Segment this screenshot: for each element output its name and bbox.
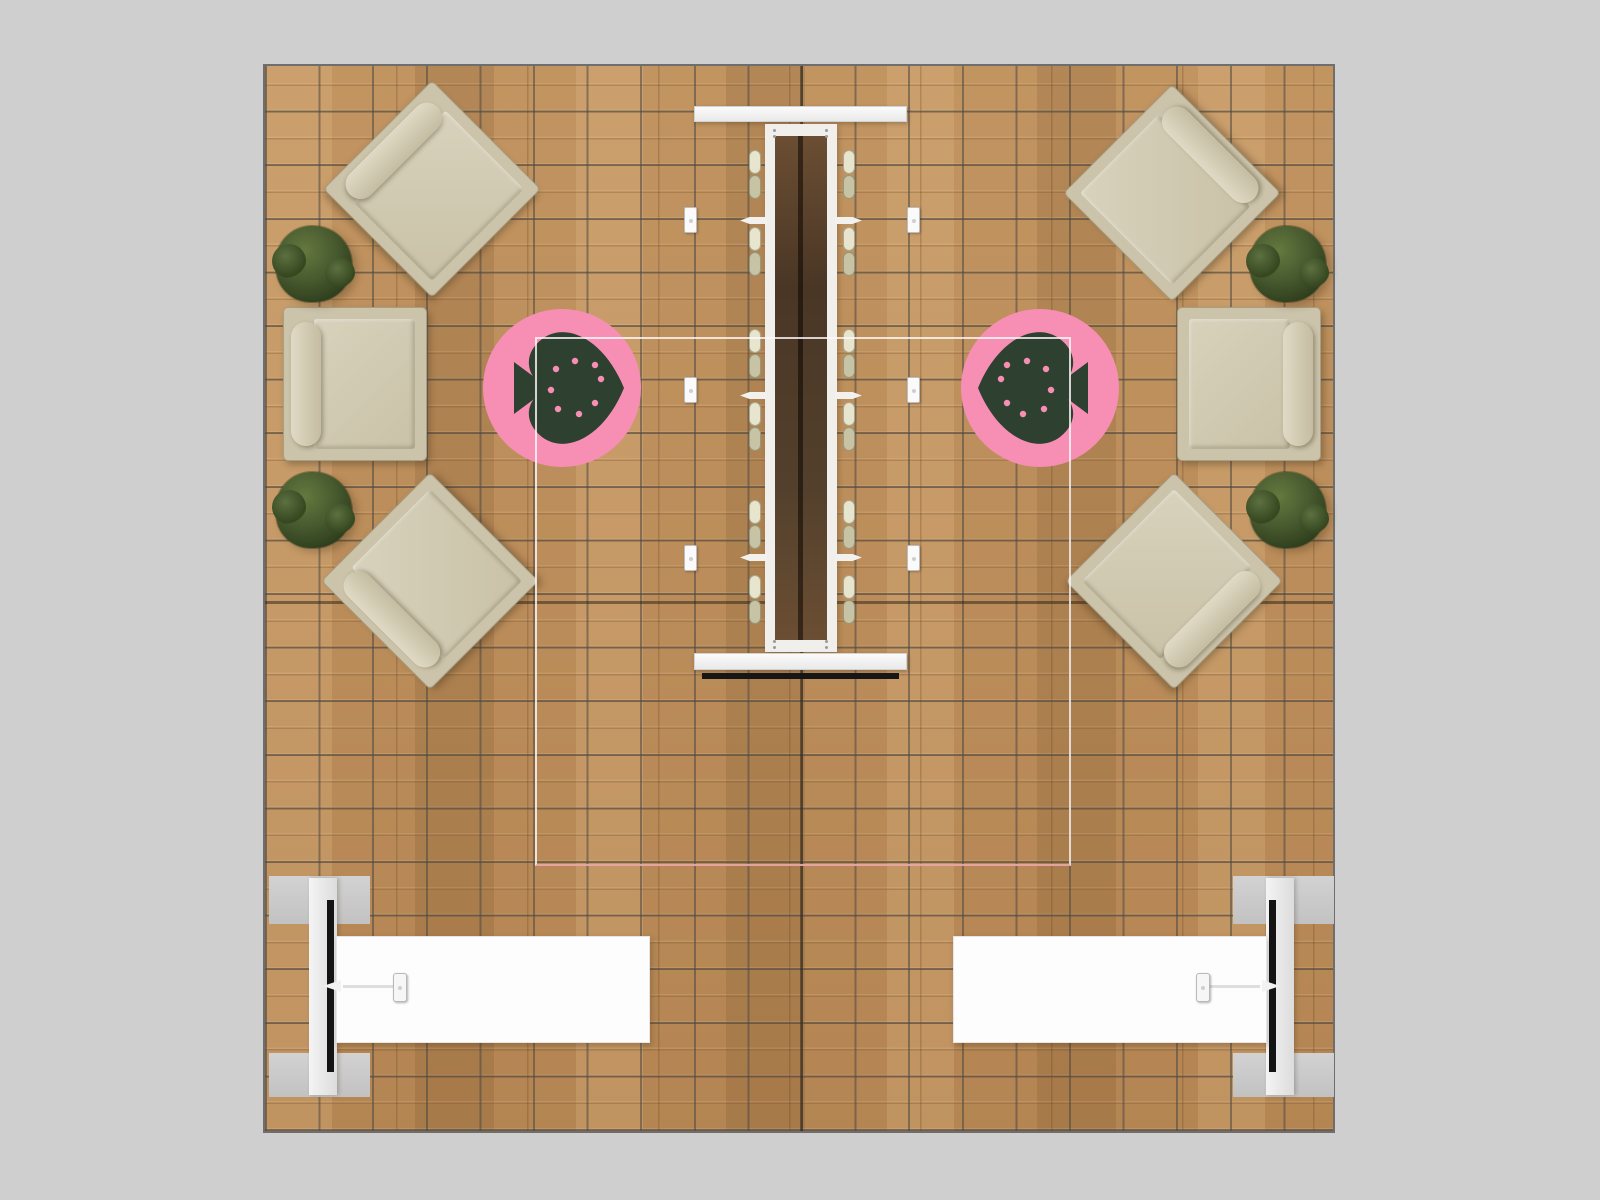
strawberry-heart-icon — [483, 309, 641, 467]
tablet-stand-right — [1196, 973, 1210, 1002]
planter-top-left — [276, 226, 352, 302]
stool-pair — [843, 500, 855, 550]
demo-table-bottom-cap — [694, 653, 907, 670]
shelf-bracket — [835, 392, 862, 399]
planter-bottom-right — [1250, 472, 1326, 548]
chair-seat — [1082, 489, 1252, 659]
lounge-chair-left-side — [283, 307, 427, 461]
literature-stand — [907, 377, 920, 403]
demo-table-top-cap — [694, 106, 907, 122]
tablet-arm-left — [343, 985, 393, 988]
chair-backrest — [291, 322, 321, 446]
arm-arrow-left — [323, 980, 341, 992]
stool-pair — [843, 329, 855, 379]
demo-table-frame — [765, 124, 837, 652]
frame-screws-top — [773, 129, 776, 132]
chair-seat — [1189, 319, 1290, 449]
tablet-stand-left — [393, 973, 407, 1002]
planter-top-right — [1250, 226, 1326, 302]
chair-seat — [314, 319, 415, 449]
demo-table-base-strip — [702, 673, 899, 679]
stool-pair — [843, 227, 855, 277]
rug-circle-left — [483, 309, 641, 467]
literature-stand — [684, 545, 697, 571]
floor-plan-stage — [0, 0, 1600, 1200]
lounge-chair-right-side — [1177, 307, 1321, 461]
chair-seat — [354, 111, 524, 281]
shelf-bracket — [740, 554, 767, 561]
chair-backrest — [1283, 322, 1313, 446]
lounge-chair-bottom-left — [321, 472, 539, 690]
shelf-bracket — [835, 217, 862, 224]
planter-bottom-left — [276, 472, 352, 548]
arm-arrow-right — [1262, 980, 1280, 992]
stool-pair — [843, 150, 855, 200]
shelf-bracket — [740, 217, 767, 224]
strawberry-heart-icon — [961, 309, 1119, 467]
stool-pair — [749, 150, 761, 200]
stool-pair — [749, 575, 761, 625]
chair-seat — [352, 489, 522, 659]
stool-pair — [749, 402, 761, 452]
stool-pair — [749, 500, 761, 550]
wood-floor — [263, 64, 1335, 1133]
counter-left — [336, 936, 650, 1043]
stool-pair — [843, 402, 855, 452]
literature-stand — [907, 545, 920, 571]
literature-stand — [684, 207, 697, 233]
tablet-arm-right — [1210, 985, 1260, 988]
literature-stand — [907, 207, 920, 233]
rug-circle-right — [961, 309, 1119, 467]
stool-pair — [749, 329, 761, 379]
counter-right — [953, 936, 1267, 1043]
literature-stand — [684, 377, 697, 403]
shelf-bracket — [835, 554, 862, 561]
chair-seat — [1080, 115, 1250, 285]
stool-pair — [749, 227, 761, 277]
lounge-chair-top-left — [323, 80, 541, 298]
frame-screws-bottom — [773, 640, 776, 643]
stool-pair — [843, 575, 855, 625]
shelf-bracket — [740, 392, 767, 399]
